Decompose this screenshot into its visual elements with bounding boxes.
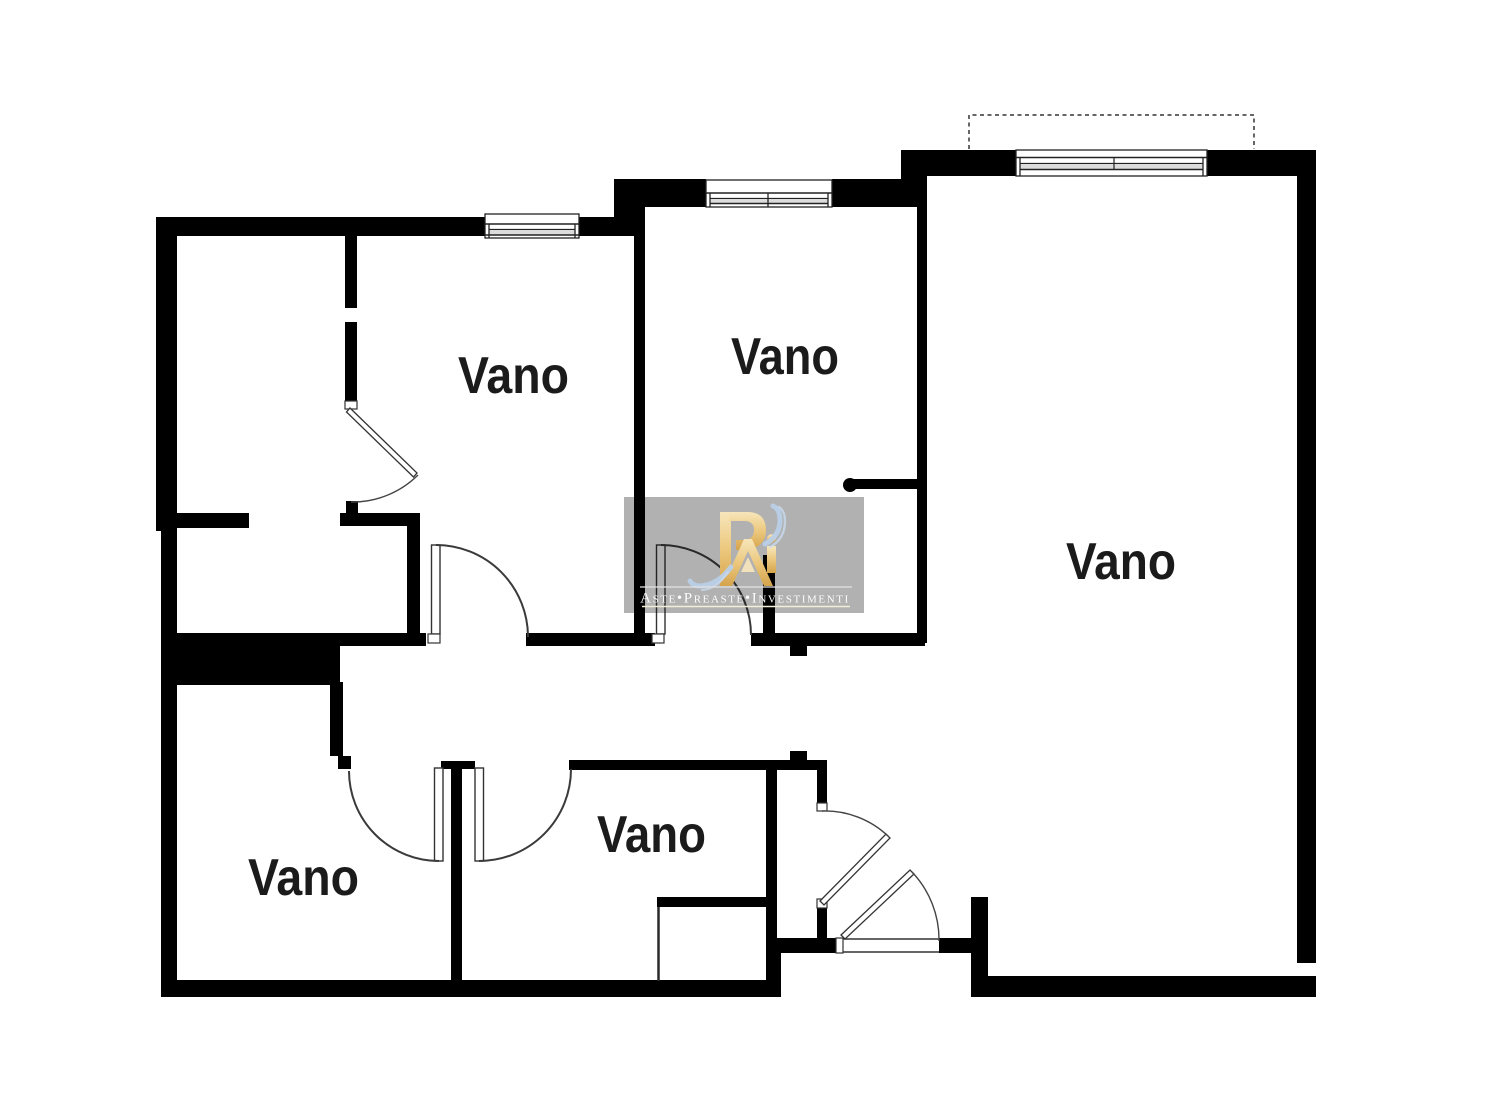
svg-text:Vano: Vano xyxy=(597,806,706,864)
svg-text:Vano: Vano xyxy=(458,347,569,405)
svg-text:Vano: Vano xyxy=(248,849,359,907)
svg-text:Vano: Vano xyxy=(731,328,839,386)
svg-text:Aste•Preaste•Investimenti: Aste•Preaste•Investimenti xyxy=(640,591,850,607)
svg-text:Vano: Vano xyxy=(1066,533,1176,591)
